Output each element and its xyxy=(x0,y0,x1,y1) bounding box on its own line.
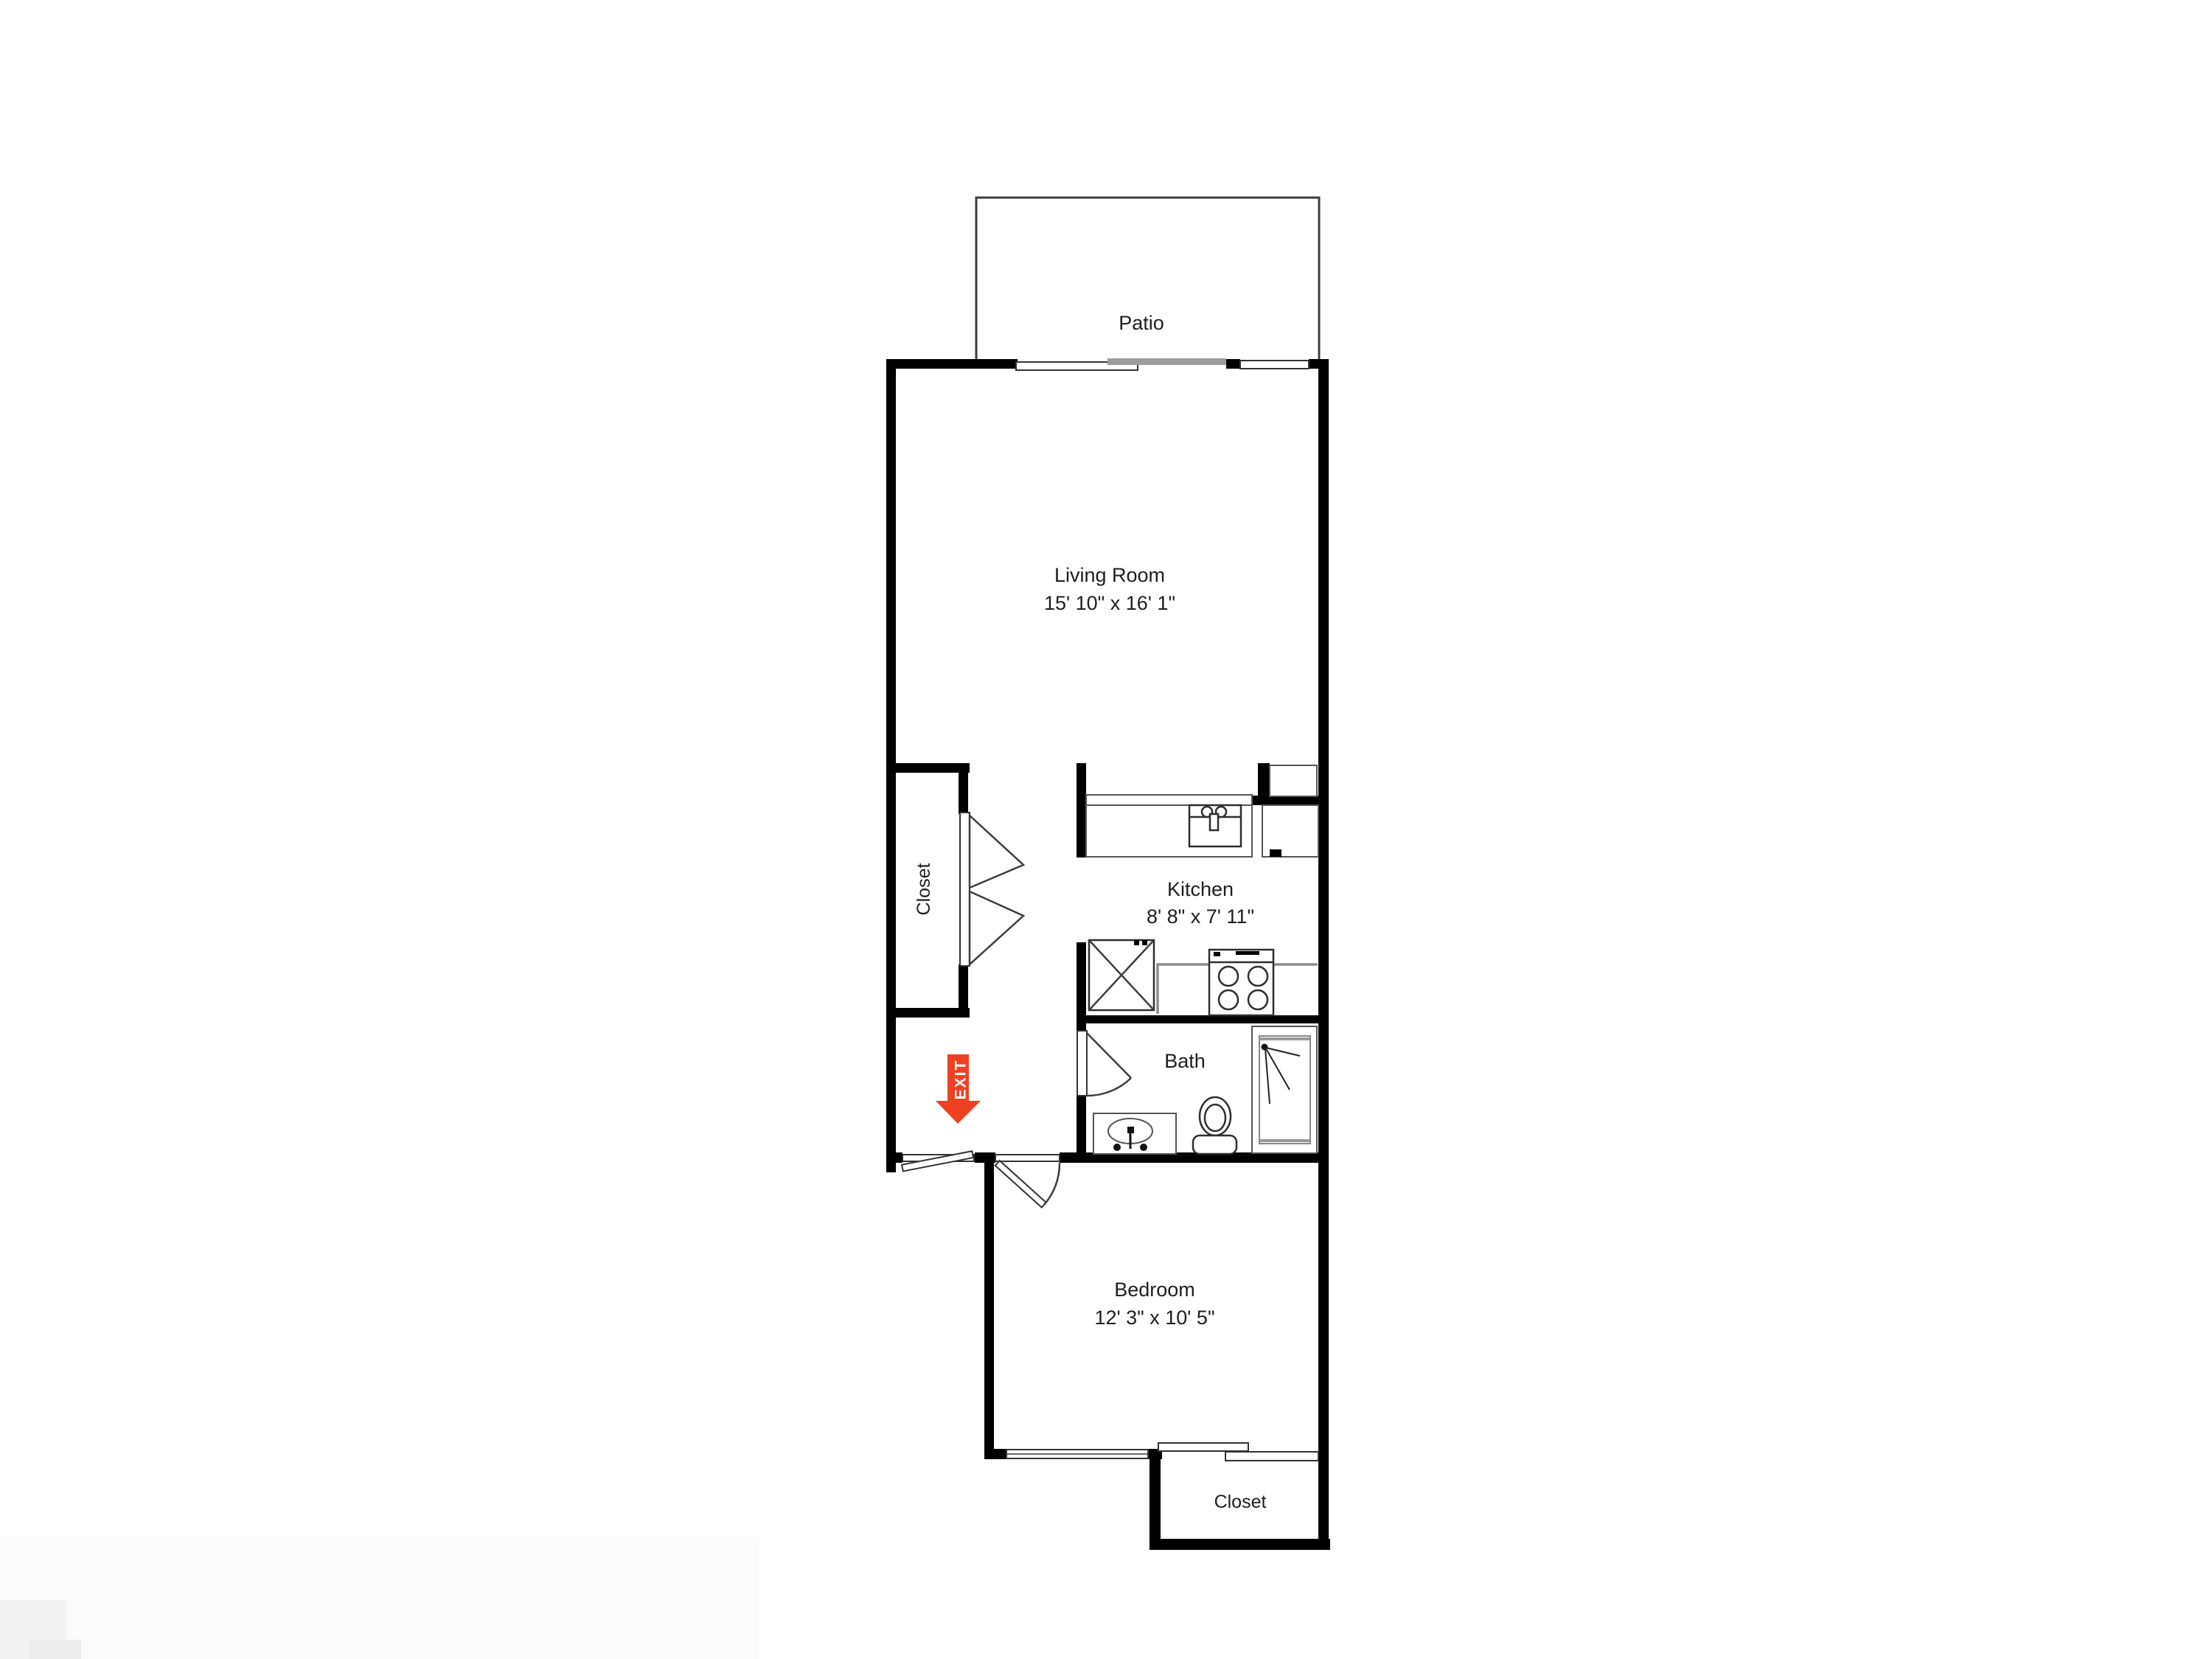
closet-slider-panel-2 xyxy=(1225,1452,1318,1461)
wall-passthrough-stub xyxy=(1258,763,1270,796)
wall-bedroom-closet-left xyxy=(1150,1459,1161,1540)
wall-bath-left-lower xyxy=(1077,1096,1086,1154)
wall-hall-bottom-left xyxy=(886,1152,902,1163)
wall-left xyxy=(886,359,896,1172)
refrigerator-icon xyxy=(1089,940,1154,1010)
bedroom-closet-label: Closet xyxy=(1214,1492,1267,1512)
toilet-tank xyxy=(1193,1135,1237,1154)
wall-bedroom-left xyxy=(984,1163,994,1454)
vanity-sink-icon xyxy=(1093,1113,1176,1154)
closet-door-track xyxy=(960,813,970,966)
bedroom-label: Bedroom xyxy=(1114,1279,1195,1301)
wall-hall-closet-bottom xyxy=(886,1008,970,1018)
fridge-tick-2 xyxy=(1142,940,1147,945)
bedroom-door-threshold xyxy=(995,1155,1060,1161)
bath-label: Bath xyxy=(1164,1050,1206,1072)
bedroom-window xyxy=(1006,1450,1148,1458)
wall-bedroom-bottom-left xyxy=(984,1449,1006,1459)
bedroom-dimensions: 12' 3" x 10' 5" xyxy=(1094,1307,1214,1329)
background-shade-blob xyxy=(29,1640,81,1659)
alcove-outline xyxy=(1262,805,1318,857)
living-room-label: Living Room xyxy=(1054,564,1165,586)
wall-top-mid xyxy=(1226,359,1240,369)
wall-right xyxy=(1318,359,1329,1550)
patio-label: Patio xyxy=(1119,312,1164,334)
vanity-handle-left xyxy=(1113,1144,1121,1151)
burner-3 xyxy=(1219,990,1238,1009)
stove-icon xyxy=(1209,950,1273,1015)
wall-hall-bottom-mid xyxy=(975,1152,995,1163)
alcove-tick xyxy=(1270,849,1281,857)
fridge-tick-1 xyxy=(1134,940,1139,945)
wall-hall-closet-right-upper xyxy=(959,773,968,814)
closet-slider-panel-1 xyxy=(1158,1443,1248,1451)
hall-closet-label: Closet xyxy=(914,863,934,916)
shower-icon xyxy=(1252,1026,1317,1153)
burner-4 xyxy=(1248,990,1267,1009)
burner-2 xyxy=(1248,967,1267,986)
living-room-window xyxy=(1240,361,1309,369)
counter-alcove xyxy=(1262,765,1318,857)
sliding-door-panel-outer xyxy=(1107,358,1226,365)
stove-tick-2 xyxy=(1236,951,1259,955)
background-shade xyxy=(0,1537,759,1659)
floor-plan-page: Patio Living Room 15' 1 xyxy=(0,0,2212,1659)
kitchen-label: Kitchen xyxy=(1167,878,1234,900)
wall-hall-closet-top xyxy=(896,763,970,773)
toilet-seat-inner xyxy=(1205,1105,1225,1131)
wall-kitchen-bath-divider xyxy=(1077,1015,1328,1023)
wall-top-left xyxy=(886,359,1018,369)
sink-spout xyxy=(1210,814,1218,830)
wall-bedroom-closet-bottom xyxy=(1150,1539,1330,1550)
exit-label: EXIT xyxy=(952,1060,969,1100)
wall-kitchen-left-upper xyxy=(1077,763,1086,858)
vanity-handle-right xyxy=(1140,1144,1147,1151)
kitchen-sink-icon xyxy=(1189,805,1241,846)
kitchen-dimensions: 8' 8" x 7' 11" xyxy=(1147,905,1254,928)
burner-1 xyxy=(1219,967,1238,986)
kitchen-passthrough-window xyxy=(1270,765,1317,796)
living-room-dimensions: 15' 10" x 16' 1" xyxy=(1044,592,1175,614)
vanity-faucet xyxy=(1127,1127,1134,1133)
wall-kitchen-left-lower xyxy=(1077,942,1086,1015)
bath-door-leaf xyxy=(1077,1031,1087,1096)
wall-bath-left-upper xyxy=(1077,1023,1086,1031)
stove-tick-1 xyxy=(1214,952,1220,956)
floor-plan-canvas: Patio Living Room 15' 1 xyxy=(0,0,2212,1659)
